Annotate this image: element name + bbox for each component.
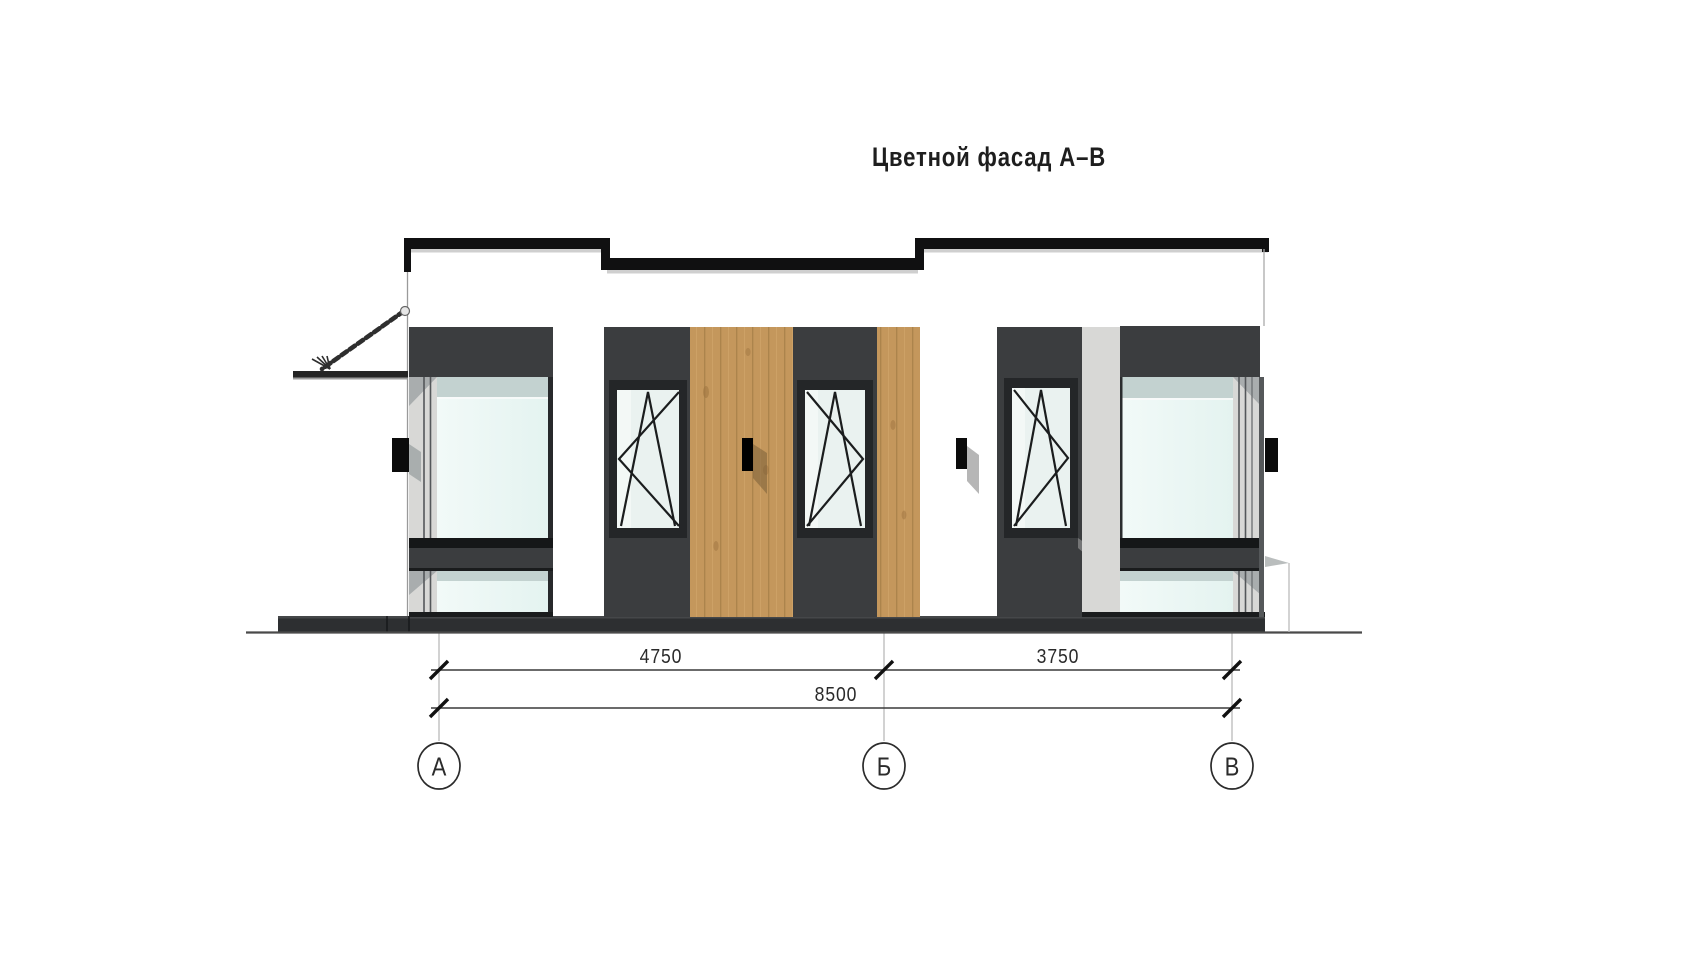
wall-light-middle xyxy=(956,438,979,494)
window-1 xyxy=(609,380,687,538)
dimension-label-overall: 8500 xyxy=(815,684,858,707)
page-title: Цветной фасад А–В xyxy=(872,142,1106,173)
facade-elevation-drawing xyxy=(0,0,1688,955)
dimension-label-a-b: 4750 xyxy=(640,646,683,669)
canopy xyxy=(293,371,408,380)
axis-bubbles xyxy=(418,743,1253,789)
light-strip xyxy=(1082,327,1120,617)
axis-label-a: А xyxy=(432,752,447,783)
dimension-line-1 xyxy=(430,661,1241,679)
axis-label-b: Б xyxy=(877,752,892,783)
window-2 xyxy=(797,380,873,538)
facade-drawing-sheet: Цветной фасад А–В 4750 3750 8500 А Б В xyxy=(0,0,1688,955)
axis-label-v: В xyxy=(1225,752,1240,783)
chain-anchor xyxy=(401,307,410,316)
wall-light-right xyxy=(1265,438,1278,472)
dimension-label-b-v: 3750 xyxy=(1037,646,1080,669)
chain xyxy=(312,307,410,370)
wood-strip xyxy=(877,327,920,617)
section-b-glazing xyxy=(1120,326,1265,617)
plinth xyxy=(278,616,1265,632)
entry-door-wood xyxy=(690,327,793,617)
section-a-glazing xyxy=(409,327,553,617)
right-corner-return xyxy=(1265,556,1289,632)
parapet xyxy=(404,238,1269,274)
